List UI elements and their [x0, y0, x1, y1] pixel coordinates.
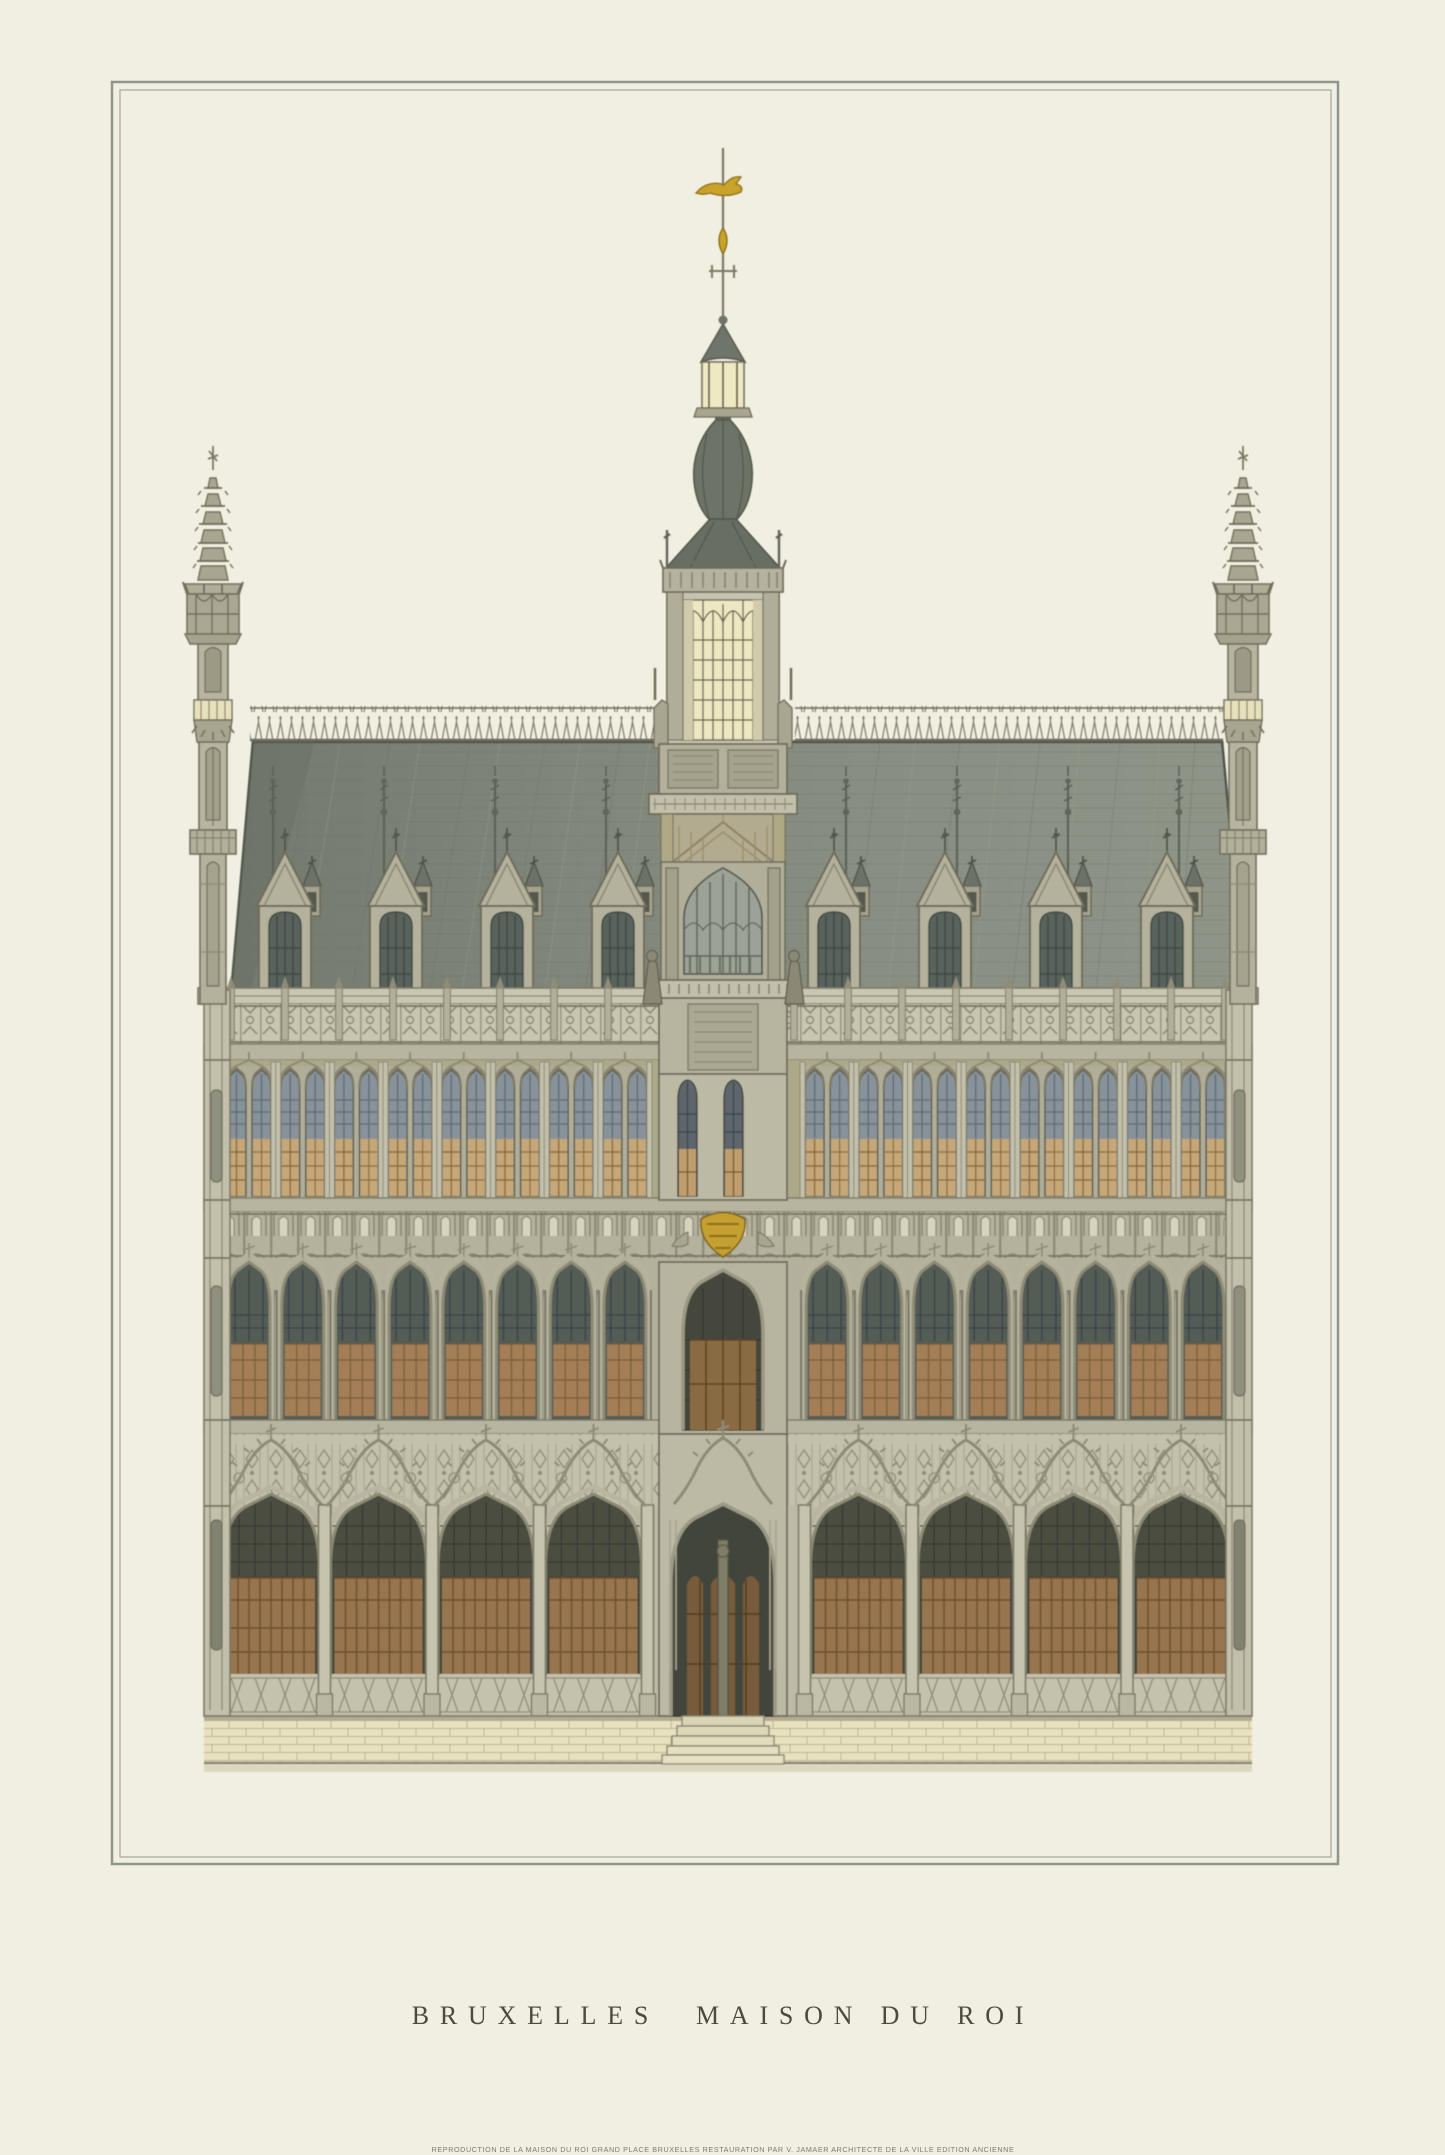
svg-text:BRUXELLES MAISON DU ROI: BRUXELLES MAISON DU ROI [412, 2001, 1035, 2030]
svg-text:REPRODUCTION DE LA MAISON DU R: REPRODUCTION DE LA MAISON DU ROI GRAND P… [432, 2145, 1015, 2154]
